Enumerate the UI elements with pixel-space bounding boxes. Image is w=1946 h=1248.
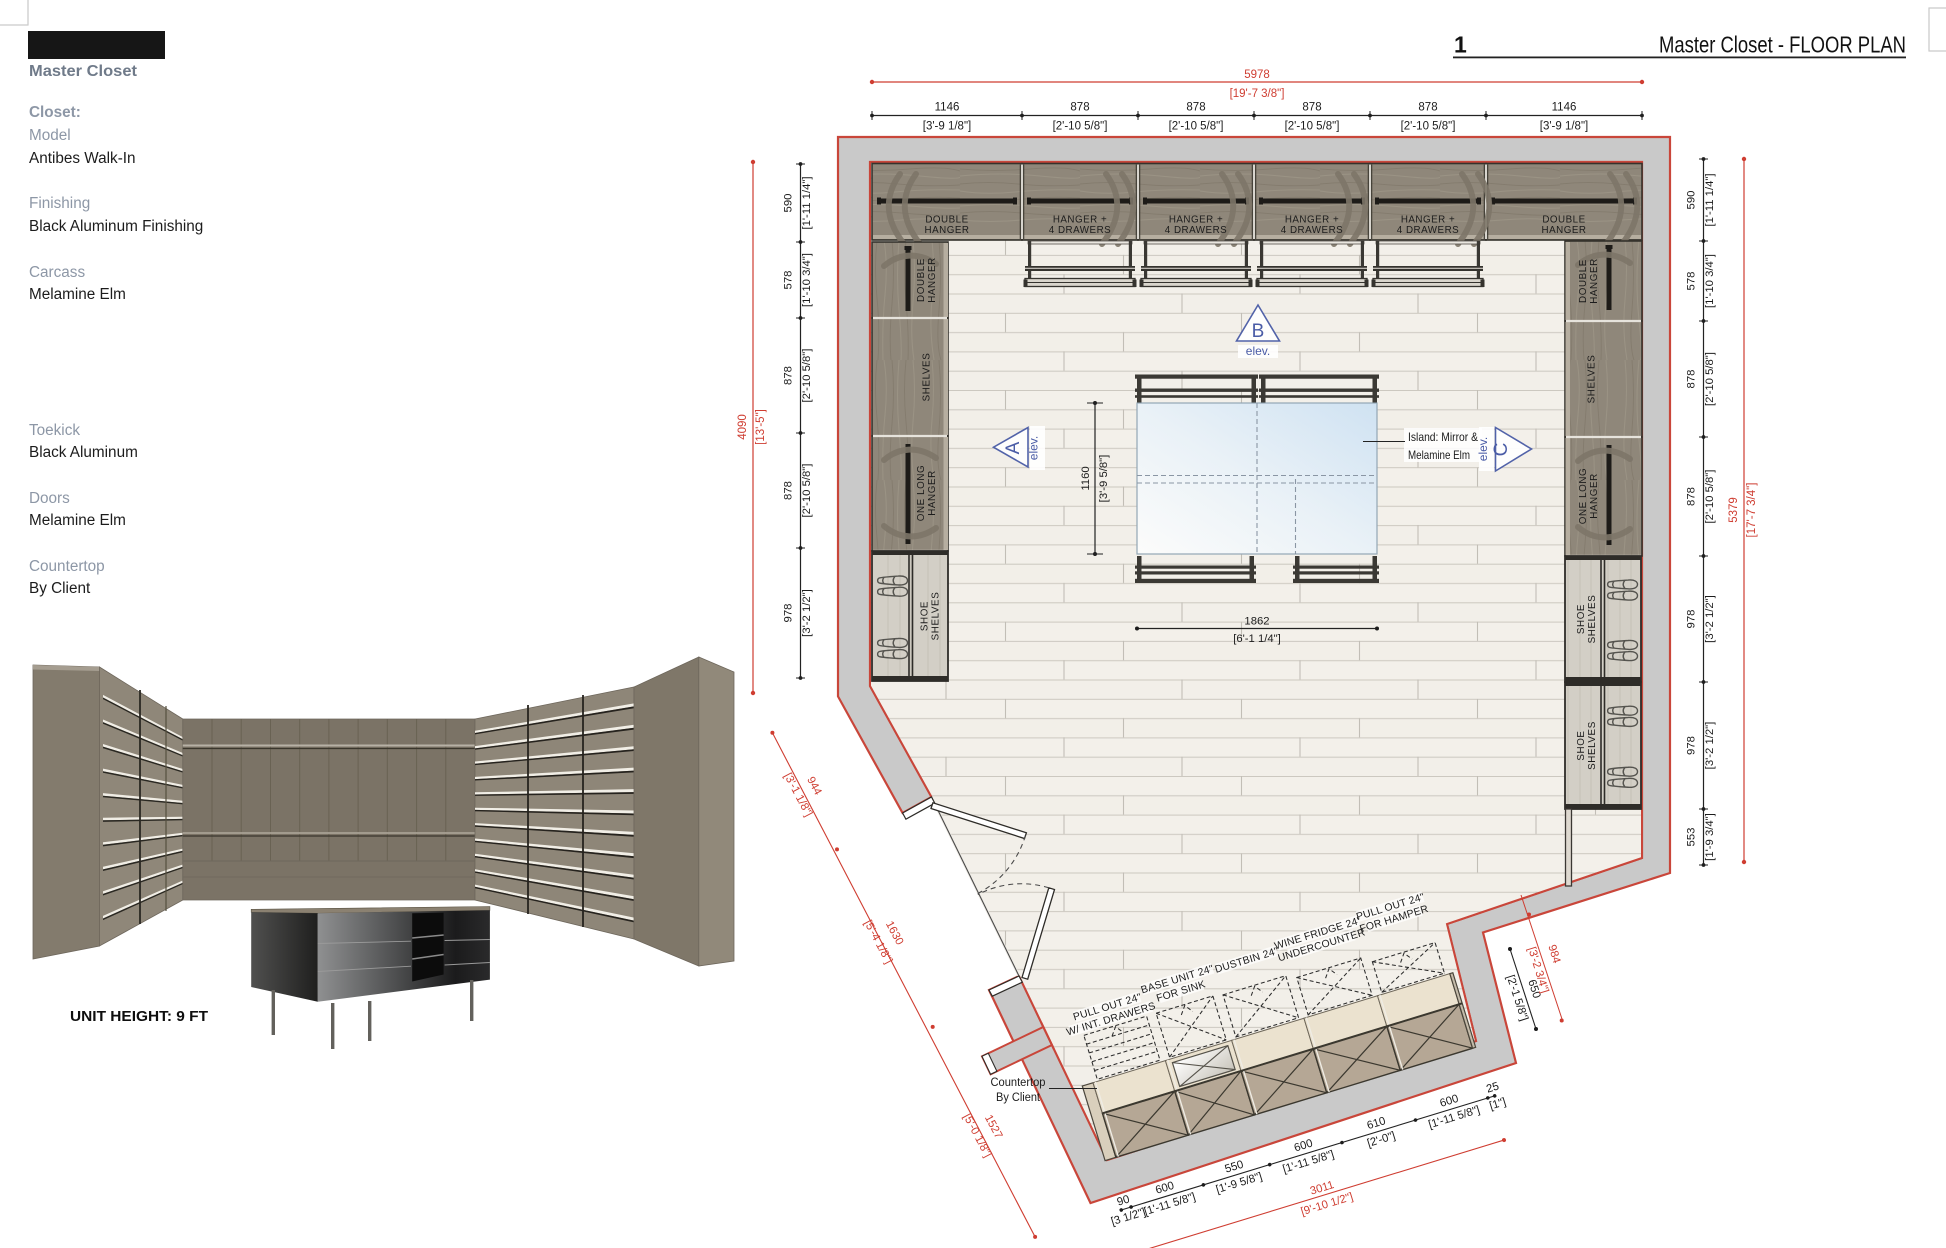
svg-text:HANGER: HANGER [927, 257, 938, 303]
svg-text:878: 878 [1686, 370, 1698, 389]
svg-text:4 DRAWERS: 4 DRAWERS [1281, 225, 1343, 236]
svg-text:elev.: elev. [1476, 437, 1490, 461]
svg-text:B: B [1252, 321, 1265, 342]
svg-text:SHELVES: SHELVES [1587, 355, 1598, 404]
svg-text:578: 578 [783, 271, 795, 290]
svg-text:978: 978 [783, 604, 795, 623]
svg-text:HANGER: HANGER [1542, 225, 1587, 236]
svg-text:1862: 1862 [1244, 616, 1269, 628]
svg-text:[2'-10 5/8"]: [2'-10 5/8"] [1285, 121, 1340, 133]
svg-text:By Client: By Client [996, 1090, 1041, 1104]
svg-text:SHOE: SHOE [920, 601, 931, 631]
svg-text:Countertop: Countertop [29, 558, 105, 575]
svg-text:Melamine Elm: Melamine Elm [29, 512, 126, 529]
svg-text:[3'-9 1/8"]: [3'-9 1/8"] [1540, 121, 1588, 133]
svg-text:elev.: elev. [1246, 344, 1270, 358]
svg-text:Antibes Walk-In: Antibes Walk-In [29, 150, 136, 167]
svg-text:[3'-2 1/2"]: [3'-2 1/2"] [801, 589, 813, 637]
svg-text:[1'-9 3/4"]: [1'-9 3/4"] [1704, 813, 1716, 861]
svg-text:SHELVES: SHELVES [931, 592, 942, 641]
svg-text:Island: Mirror &: Island: Mirror & [1408, 430, 1478, 444]
svg-text:Countertop: Countertop [991, 1075, 1046, 1089]
svg-text:[2'-10 5/8"]: [2'-10 5/8"] [1169, 121, 1224, 133]
svg-text:elev.: elev. [1027, 436, 1041, 460]
svg-text:4 DRAWERS: 4 DRAWERS [1049, 225, 1111, 236]
svg-text:5978: 5978 [1244, 69, 1270, 81]
svg-text:[17'-7 3/4"]: [17'-7 3/4"] [1746, 483, 1758, 538]
svg-text:DOUBLE: DOUBLE [1578, 259, 1589, 303]
svg-text:Melamine Elm: Melamine Elm [1408, 448, 1470, 462]
svg-text:Doors: Doors [29, 490, 70, 507]
svg-text:878: 878 [1418, 102, 1437, 114]
svg-text:[13'-5"]: [13'-5"] [755, 409, 767, 445]
svg-text:[3'-2 1/2"]: [3'-2 1/2"] [1704, 722, 1716, 770]
svg-text:HANGER: HANGER [1589, 258, 1600, 304]
svg-text:590: 590 [783, 194, 795, 213]
svg-text:553: 553 [1686, 828, 1698, 847]
svg-text:SHELVES: SHELVES [922, 353, 933, 402]
svg-text:[1'-11 1/4"]: [1'-11 1/4"] [1704, 173, 1716, 226]
svg-text:Black Aluminum Finishing: Black Aluminum Finishing [29, 218, 203, 235]
svg-text:HANGER +: HANGER + [1053, 215, 1107, 226]
svg-text:1146: 1146 [935, 102, 960, 114]
svg-text:SHELVES: SHELVES [1587, 721, 1598, 770]
svg-text:4 DRAWERS: 4 DRAWERS [1397, 225, 1459, 236]
svg-text:HANGER: HANGER [925, 225, 970, 236]
svg-text:[3'-2 1/2"]: [3'-2 1/2"] [1704, 595, 1716, 643]
svg-text:DOUBLE: DOUBLE [916, 258, 927, 302]
svg-text:HANGER: HANGER [1589, 473, 1600, 519]
svg-text:Toekick: Toekick [29, 422, 80, 439]
svg-text:590: 590 [1686, 191, 1698, 210]
svg-text:Black Aluminum: Black Aluminum [29, 444, 138, 461]
svg-text:878: 878 [783, 366, 795, 385]
svg-text:DOUBLE: DOUBLE [1542, 215, 1585, 226]
svg-text:1: 1 [1454, 32, 1467, 58]
svg-text:4 DRAWERS: 4 DRAWERS [1165, 225, 1227, 236]
svg-text:4090: 4090 [737, 414, 749, 440]
svg-text:878: 878 [1070, 102, 1089, 114]
svg-text:878: 878 [1686, 487, 1698, 506]
svg-text:SHOE: SHOE [1576, 730, 1587, 760]
svg-text:ONE LONG: ONE LONG [916, 465, 927, 522]
svg-text:578: 578 [1686, 272, 1698, 291]
svg-text:C: C [1491, 443, 1512, 457]
svg-text:[2'-10 5/8"]: [2'-10 5/8"] [1704, 470, 1716, 524]
svg-text:HANGER +: HANGER + [1401, 215, 1455, 226]
svg-text:UNIT HEIGHT: 9 FT: UNIT HEIGHT: 9 FT [70, 1009, 208, 1025]
svg-text:Model: Model [29, 127, 71, 144]
svg-text:[1'-10 3/4"]: [1'-10 3/4"] [801, 253, 813, 307]
svg-text:DOUBLE: DOUBLE [925, 215, 968, 226]
svg-text:[1'-11 1/4"]: [1'-11 1/4"] [801, 176, 813, 229]
svg-text:[2'-10 5/8"]: [2'-10 5/8"] [801, 349, 813, 403]
svg-text:Melamine Elm: Melamine Elm [29, 286, 126, 303]
svg-text:[2'-10 5/8"]: [2'-10 5/8"] [1704, 352, 1716, 406]
svg-text:ONE LONG: ONE LONG [1578, 468, 1589, 525]
svg-text:[3'-9 5/8"]: [3'-9 5/8"] [1098, 455, 1110, 503]
svg-text:[2'-10 5/8"]: [2'-10 5/8"] [1401, 121, 1456, 133]
svg-text:[3'-9 1/8"]: [3'-9 1/8"] [923, 121, 971, 133]
svg-text:Closet:: Closet: [29, 104, 81, 121]
svg-text:Master Closet: Master Closet [29, 63, 137, 80]
svg-text:[6'-1 1/4"]: [6'-1 1/4"] [1233, 633, 1281, 645]
svg-text:5379: 5379 [1728, 497, 1740, 523]
svg-text:[1'-10 3/4"]: [1'-10 3/4"] [1704, 254, 1716, 308]
svg-text:HANGER: HANGER [927, 470, 938, 516]
svg-text:HANGER +: HANGER + [1169, 215, 1223, 226]
svg-text:SHELVES: SHELVES [1587, 595, 1598, 644]
svg-text:878: 878 [1186, 102, 1205, 114]
svg-text:[2'-10 5/8"]: [2'-10 5/8"] [801, 464, 813, 518]
svg-text:Master Closet - FLOOR PLAN: Master Closet - FLOOR PLAN [1659, 32, 1906, 58]
svg-text:HANGER +: HANGER + [1285, 215, 1339, 226]
svg-text:Finishing: Finishing [29, 195, 90, 212]
svg-text:878: 878 [783, 481, 795, 500]
svg-text:1160: 1160 [1080, 466, 1092, 490]
svg-text:By Client: By Client [29, 580, 91, 597]
svg-text:1146: 1146 [1552, 102, 1577, 114]
svg-text:A: A [1003, 441, 1024, 454]
svg-text:[19'-7 3/8"]: [19'-7 3/8"] [1230, 88, 1285, 100]
svg-text:SHOE: SHOE [1576, 604, 1587, 634]
svg-text:[2'-10 5/8"]: [2'-10 5/8"] [1053, 121, 1108, 133]
svg-text:978: 978 [1686, 610, 1698, 629]
svg-text:978: 978 [1686, 736, 1698, 755]
svg-text:878: 878 [1302, 102, 1321, 114]
svg-text:Carcass: Carcass [29, 264, 85, 281]
